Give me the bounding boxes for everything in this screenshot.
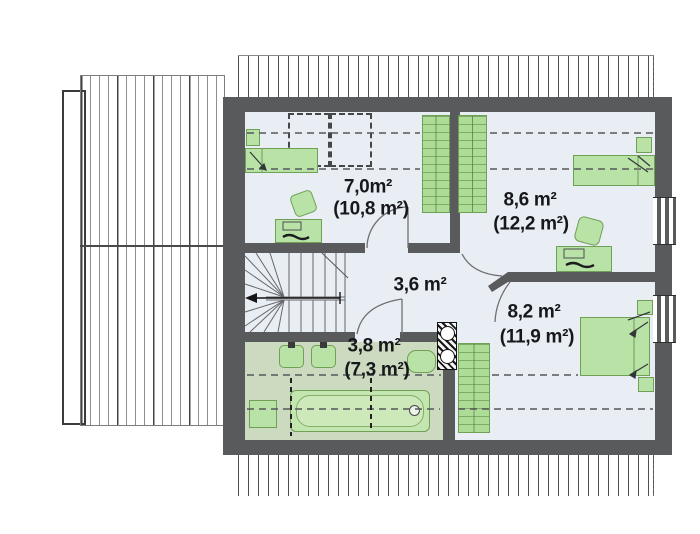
room-label-area-total: (12,2 m²)	[493, 215, 568, 234]
washer	[249, 400, 277, 428]
floor-plan: 7,0m² (10,8 m²) 8,6 m² (12,2 m²) 3,6 m² …	[0, 0, 700, 534]
toilet	[407, 350, 436, 373]
partition-bedrooms-right	[508, 272, 655, 282]
wardrobe	[458, 343, 490, 433]
partition-bath-right	[443, 368, 455, 440]
bathtub	[290, 390, 430, 432]
roof-window-dashed	[330, 113, 372, 167]
window-bedroom-bottom-right	[653, 295, 676, 343]
room-label-area-total: (10,8 m²)	[333, 200, 408, 219]
window-bedroom-top-right	[653, 197, 676, 245]
vent-duct-circle	[440, 326, 455, 341]
nightstand	[246, 129, 260, 146]
partition-bath-top-right	[400, 332, 437, 342]
wardrobe	[458, 115, 487, 213]
sink	[311, 345, 336, 368]
desk	[556, 246, 612, 272]
sink	[279, 345, 304, 368]
room-label-area: 3,6 m²	[393, 276, 446, 295]
bathtub-basin	[296, 395, 424, 427]
vent-shaft	[437, 322, 457, 370]
room-label-area: 8,2 m²	[507, 303, 560, 322]
roof-overhang-bottom	[238, 453, 654, 496]
nightstand	[636, 137, 652, 153]
single-bed	[573, 155, 655, 186]
room-label-area: 8,6 m²	[503, 191, 556, 210]
sink-tap-icon	[320, 342, 327, 348]
room-label-area: 7,0m²	[344, 178, 392, 197]
garage-roof-ridge	[80, 245, 223, 247]
partition-bath-top-left	[245, 332, 355, 342]
partition-hall-right	[408, 243, 460, 253]
double-bed	[580, 317, 650, 376]
vent-duct-circle	[440, 349, 455, 364]
partition-hall-left	[245, 243, 365, 253]
room-label-area-total: (11,9 m²)	[500, 328, 574, 347]
wardrobe	[422, 115, 450, 213]
garage-roof-hatch	[80, 75, 225, 426]
room-label-area-total: (7,3 m²)	[344, 361, 409, 380]
single-bed	[245, 148, 318, 173]
nightstand	[638, 377, 654, 392]
room-label-area: 3,8 m²	[347, 337, 400, 356]
desk	[275, 219, 322, 243]
sink-tap-icon	[288, 342, 295, 348]
bathtub-drain-icon	[409, 405, 420, 416]
nightstand	[637, 300, 653, 315]
roof-overhang-top	[238, 55, 654, 98]
